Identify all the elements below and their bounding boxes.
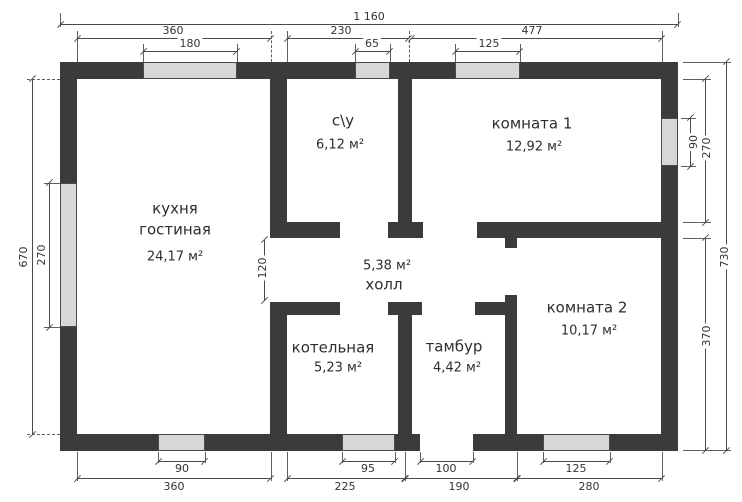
dim-label-right-room2: 370 bbox=[701, 324, 713, 349]
wall-bathroom-room1 bbox=[398, 79, 412, 222]
window-room2-bottom bbox=[543, 434, 610, 451]
dim-label-right-room1: 270 bbox=[701, 136, 713, 161]
dim-label-right-window: 90 bbox=[688, 133, 700, 151]
extension-line bbox=[683, 79, 711, 80]
wall-hall-bottom-seg2 bbox=[388, 302, 422, 315]
dim-label-bottom-entrance: 100 bbox=[434, 463, 459, 475]
door-opening-entrance bbox=[420, 433, 473, 452]
dim-label-bottom-boiler: 225 bbox=[333, 481, 358, 493]
room-label-bathroom: с\у bbox=[332, 113, 354, 130]
room-label-kitchen-line1: кухня bbox=[152, 201, 198, 218]
dim-line-top-bathroom-window bbox=[355, 51, 390, 52]
room-label-hall: холл bbox=[365, 277, 402, 294]
dim-label-bottom-room2-window: 125 bbox=[564, 463, 589, 475]
wall-hall-bottom-seg1 bbox=[287, 302, 340, 315]
wall-room2-left-lower bbox=[505, 295, 517, 434]
dim-line-top-kitchen-window bbox=[143, 51, 237, 52]
dim-line-top-bathroom bbox=[287, 38, 409, 39]
extension-line bbox=[143, 44, 144, 62]
dim-label-right-overall: 730 bbox=[719, 245, 731, 270]
area-label-vestibule: 4,42 м² bbox=[433, 361, 481, 376]
dim-line-left-window bbox=[49, 183, 50, 327]
wall-kitchen-upper bbox=[270, 79, 287, 238]
area-label-room2: 10,17 м² bbox=[561, 324, 617, 339]
dim-label-hall-width: 120 bbox=[257, 256, 269, 281]
dim-line-bottom-kitchen bbox=[77, 478, 271, 479]
dim-label-bottom-boiler-window: 95 bbox=[359, 463, 377, 475]
dim-label-bottom-room2: 280 bbox=[577, 481, 602, 493]
dim-label-top-kitchen: 360 bbox=[161, 25, 186, 37]
dim-line-top-overall bbox=[60, 24, 678, 25]
dim-label-bottom-kitchen: 360 bbox=[162, 481, 187, 493]
floor-plan: 1 160 360 230 477 180 65 125 90 95 100 1… bbox=[0, 0, 742, 502]
extension-line bbox=[237, 44, 238, 62]
room-label-kitchen-line2: гостиная bbox=[139, 222, 211, 239]
area-label-kitchen: 24,17 м² bbox=[147, 250, 203, 265]
extension-line bbox=[44, 327, 60, 328]
wall-hall-top-seg1 bbox=[287, 222, 340, 238]
dim-label-left-height: 670 bbox=[18, 245, 30, 270]
area-label-bathroom: 6,12 м² bbox=[316, 138, 364, 153]
window-boiler-bottom bbox=[342, 434, 395, 451]
dim-line-left-height bbox=[32, 79, 33, 434]
extension-line bbox=[683, 222, 711, 223]
room-label-room1: комната 1 bbox=[492, 116, 573, 133]
window-kitchen-left bbox=[60, 183, 77, 327]
extension-line bbox=[355, 44, 356, 62]
extension-line bbox=[520, 44, 521, 62]
extension-line bbox=[390, 44, 391, 62]
dim-line-bottom-vestibule bbox=[405, 478, 517, 479]
wall-kitchen-lower bbox=[270, 302, 287, 434]
dim-label-top-kitchen-window: 180 bbox=[178, 38, 203, 50]
dim-label-top-overall: 1 160 bbox=[351, 11, 387, 23]
window-kitchen-bottom bbox=[158, 434, 205, 451]
dim-label-top-bathroom-window: 65 bbox=[363, 38, 381, 50]
wall-boiler-vestibule bbox=[398, 315, 412, 434]
dim-line-top-room1 bbox=[411, 38, 662, 39]
dim-line-bottom-boiler bbox=[287, 478, 405, 479]
room-label-room2: комната 2 bbox=[547, 300, 628, 317]
window-room1-right bbox=[661, 118, 678, 166]
area-label-hall: 5,38 м² bbox=[363, 259, 411, 274]
window-kitchen-top bbox=[143, 62, 237, 79]
area-label-boiler: 5,23 м² bbox=[314, 361, 362, 376]
wall-hall-top-seg2 bbox=[388, 222, 423, 238]
dim-label-bottom-vestibule: 190 bbox=[447, 481, 472, 493]
dim-label-top-room1-window: 125 bbox=[477, 38, 502, 50]
dim-label-top-bathroom: 230 bbox=[329, 25, 354, 37]
room-label-boiler: котельная bbox=[292, 340, 375, 357]
area-label-room1: 12,92 м² bbox=[506, 140, 562, 155]
dim-label-bottom-kitchen-window: 90 bbox=[173, 463, 191, 475]
wall-hall-top-seg3 bbox=[477, 222, 662, 238]
dim-line-bottom-room2 bbox=[517, 478, 662, 479]
dim-label-left-window: 270 bbox=[36, 243, 48, 268]
dim-label-top-room1: 477 bbox=[520, 25, 545, 37]
extension-line bbox=[683, 238, 711, 239]
window-room1-top bbox=[455, 62, 520, 79]
extension-line bbox=[678, 13, 679, 27]
extension-line bbox=[455, 44, 456, 62]
window-bathroom-top bbox=[355, 62, 390, 79]
wall-room2-left-upper bbox=[505, 238, 517, 248]
room-label-vestibule: тамбур bbox=[426, 339, 483, 356]
dim-line-top-room1-window bbox=[455, 51, 520, 52]
dim-line-top-kitchen bbox=[77, 38, 271, 39]
